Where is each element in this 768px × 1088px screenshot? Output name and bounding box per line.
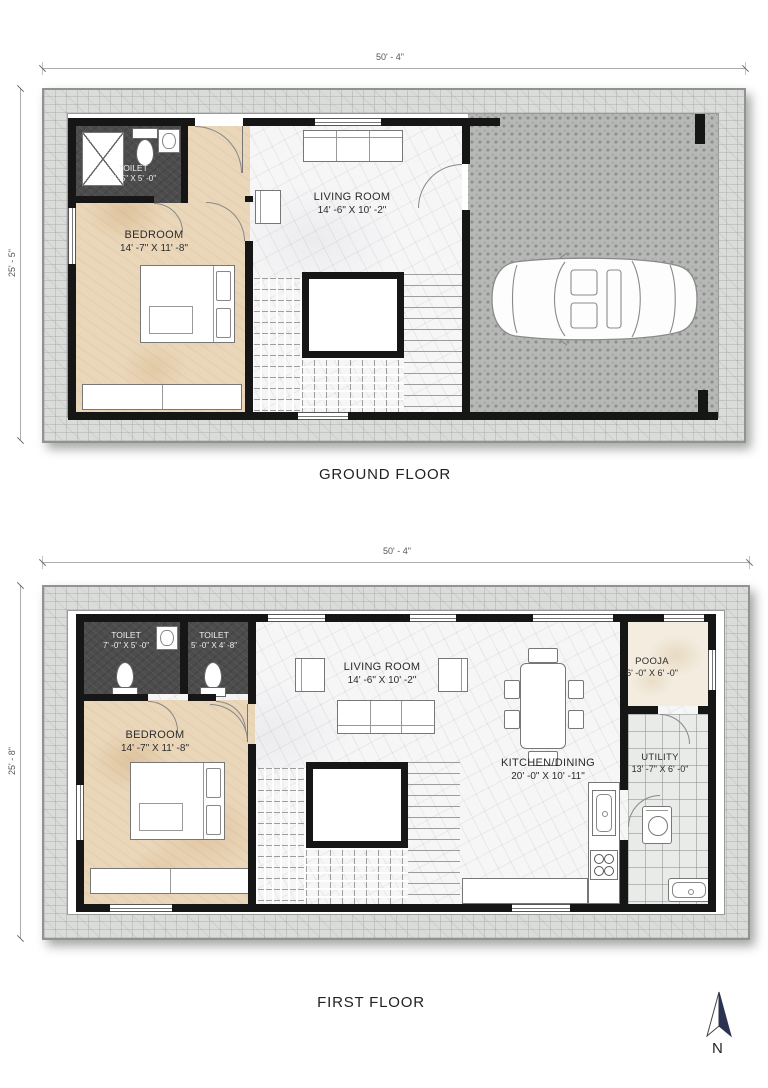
pillow-icon [206,805,221,835]
bed-icon [140,265,235,343]
wall [462,210,470,420]
ff-height-dimension: 25' - 8" [7,742,17,780]
gf-title: GROUND FLOOR [319,466,451,483]
wardrobe-icon [90,868,250,894]
room-size: 6' -0" X 6' -0" [626,668,678,680]
armchair-icon [295,658,325,692]
ff-toilet2-label: TOILET 5' -0" X 4' -8" [191,630,237,651]
window [110,904,172,912]
room-name: TOILET [103,630,149,641]
washbasin-icon [156,626,178,650]
wall [620,706,658,714]
chair-icon [504,680,520,699]
wall [68,412,718,420]
room-name: UTILITY [632,752,689,764]
window [68,208,76,264]
wall [68,118,76,420]
side-chair-icon [255,190,281,224]
room-size: 13' -7" X 6' -0" [632,764,689,776]
wall [68,118,470,126]
wall [84,694,148,701]
wall [698,390,708,414]
lift-shaft [306,762,408,848]
kitchen-sink-icon [592,790,616,836]
wall [248,622,256,700]
wall [76,904,716,912]
kitchen-counter [462,878,588,904]
room-name: TOILET [191,630,237,641]
chair-icon [568,710,584,729]
room-name: LIVING ROOM [314,190,391,204]
staircase [252,278,302,412]
utility-sink-icon [668,878,710,902]
wall [76,196,154,203]
room-size: 7' -0" X 5' -0" [103,641,149,651]
dimension-line-left [20,585,21,938]
wall [695,114,705,144]
wall [245,196,253,202]
staircase [306,848,408,904]
washbasin-icon [158,129,180,153]
gf-living-label: LIVING ROOM 14' -6" X 10' -2" [314,190,391,217]
ff-living-label: LIVING ROOM 14' -6" X 10' -2" [344,660,421,687]
room-name: KITCHEN/DINING [501,756,595,770]
chair-icon [528,648,558,663]
room-size: 14' -6" X 10' -2" [344,674,421,687]
room-name: BEDROOM [120,228,188,242]
car-icon [487,252,702,347]
armchair-icon [438,658,468,692]
window [76,785,84,840]
chair-icon [568,680,584,699]
lift-void [309,279,397,351]
ff-kitchen-label: KITCHEN/DINING 20' -0" X 10' -11" [501,756,595,783]
room-name: TOILET [110,163,156,174]
wc-icon [132,128,158,139]
sofa-icon [303,130,403,162]
gf-bedroom-label: BEDROOM 14' -7" X 11' -8" [120,228,188,255]
window [298,412,348,420]
pillow-icon [216,308,231,338]
gf-width-dimension: 50' - 4" [376,52,404,62]
ff-toilet1-label: TOILET 7' -0" X 5' -0" [103,630,149,651]
room-size: 14' -7" X 11' -8" [120,242,188,255]
door-leaf [242,126,243,173]
dining-table-icon [520,663,566,749]
north-label: N [712,1040,723,1057]
door-leaf [247,704,248,742]
window [512,904,570,912]
wall [620,714,628,790]
wall [245,241,253,420]
lift-shaft [302,272,404,358]
pillow-icon [206,768,221,798]
dimension-line-left [20,88,21,440]
north-arrow-icon [702,990,736,1042]
wall [248,744,256,912]
gf-height-dimension: 25' - 5" [7,244,17,282]
bed-icon [130,762,225,840]
gf-toilet-label: TOILET 7' -5" X 5' -0" [110,163,156,184]
room-name: LIVING ROOM [344,660,421,674]
wall [248,700,256,704]
wall [698,706,716,714]
window [410,614,456,622]
room-size: 14' -6" X 10' -2" [314,204,391,217]
wardrobe-icon [82,384,242,410]
wc-icon [204,662,222,689]
wc-icon [116,662,134,689]
sofa-icon [337,700,435,734]
window [315,118,381,126]
room-size: 7' -5" X 5' -0" [110,174,156,184]
staircase [256,768,306,904]
staircase [408,762,460,904]
room-name: BEDROOM [121,728,189,742]
wall [188,694,216,701]
staircase [302,358,404,412]
wall [620,840,628,904]
room-size: 5' -0" X 4' -8" [191,641,237,651]
wall [181,126,188,203]
window [533,614,613,622]
floor-plan-sheet: { "ground_floor": { "title": "GROUND FLO… [0,0,768,1088]
ff-utility-label: UTILITY 13' -7" X 6' -0" [632,752,689,776]
wall [470,118,500,126]
wc-icon [136,139,154,166]
ff-width-dimension: 50' - 4" [383,546,411,556]
window [268,614,325,622]
pillow-icon [216,271,231,301]
wall [76,614,84,912]
wall [462,118,470,164]
stove-icon [590,850,618,880]
door-opening [195,118,243,126]
dimension-line-top [42,562,750,563]
ff-title: FIRST FLOOR [317,994,425,1011]
ff-bedroom-label: BEDROOM 14' -7" X 11' -8" [121,728,189,755]
window [664,614,704,622]
chair-icon [504,710,520,729]
dimension-line-top [42,68,746,69]
ff-pooja-label: POOJA 6' -0" X 6' -0" [626,656,678,680]
window [708,650,716,690]
staircase [404,274,462,412]
lift-void [313,769,401,841]
wall [180,622,188,694]
room-name: POOJA [626,656,678,668]
room-size: 14' -7" X 11' -8" [121,742,189,755]
room-size: 20' -0" X 10' -11" [501,770,595,783]
